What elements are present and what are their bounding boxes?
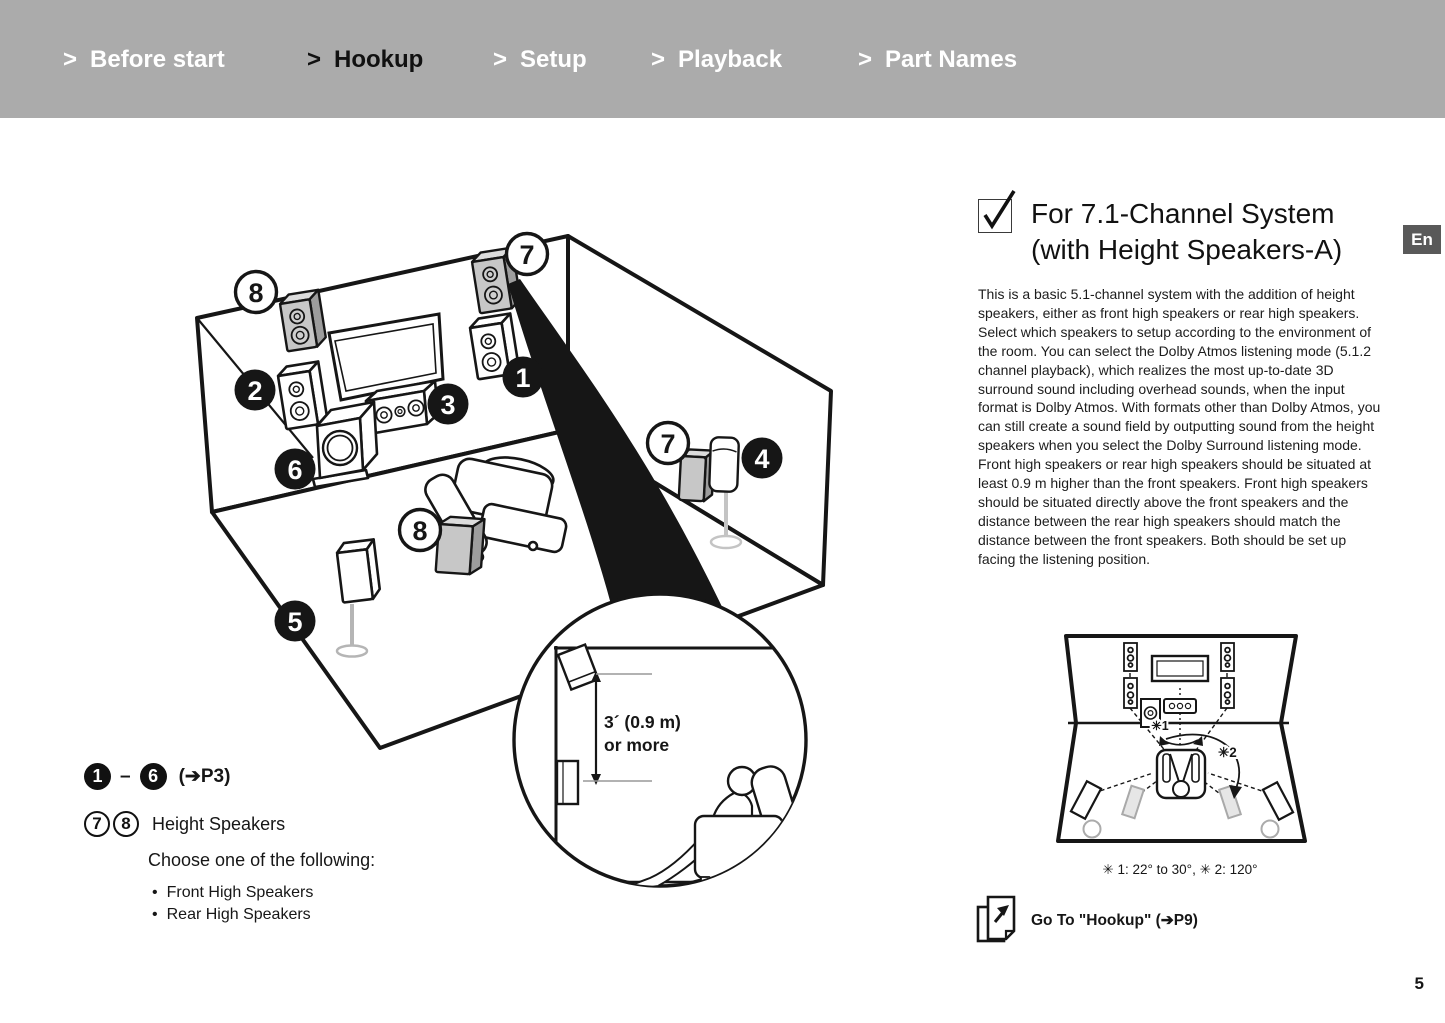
speaker-badge: 8 [400,510,441,551]
height-options-list: •Front High Speakers •Rear High Speakers [152,882,375,926]
speaker-badge: 6 [275,449,316,490]
height-detail-inset: 3´ (0.9 m) or more [514,594,806,888]
speaker-badge: 7 [507,234,548,275]
inset-dimension-text: or more [604,735,669,755]
checkbox [978,199,1012,233]
speaker-badge: 2 [235,370,276,411]
svg-text:4: 4 [754,444,769,474]
badge-6: 6 [140,763,167,790]
inset-dimension-text: 3´ (0.9 m) [604,712,681,732]
svg-text:7: 7 [660,429,675,459]
section-heading: For 7.1-Channel System (with Height Spea… [976,196,1396,268]
angle-label-2: ✳2 [1218,745,1237,760]
mini-diagram-caption: ✳ 1: 22° to 30°, ✳ 2: 120° [1102,862,1257,877]
page-reference-link[interactable]: (➔P3) [179,765,231,788]
check-icon [979,200,1011,232]
mini-topdown-diagram: ✳1 ✳2 ✳ 1: 22° to 30°, ✳ 2: 120° [1058,636,1305,877]
option-label: Front High Speakers [167,884,314,901]
goto-pages-icon [976,895,1022,945]
legend-height-row: 7 8 Height Speakers [84,811,375,837]
rear-high-left-speaker [436,516,485,575]
badge-8: 8 [113,811,139,837]
badge-1: 1 [84,763,111,790]
speaker-badge: 1 [503,357,544,398]
section-body-text: This is a basic 5.1-channel system with … [978,285,1384,569]
list-item: •Front High Speakers [152,882,375,904]
speaker-badge: 4 [742,438,783,479]
range-dash: – [120,766,131,788]
goto-label: Go To "Hookup" (➔P9) [1031,911,1198,930]
height-speakers-label: Height Speakers [152,814,285,835]
svg-text:3: 3 [440,390,455,420]
svg-text:6: 6 [287,455,302,485]
speaker-badge: 5 [275,601,316,642]
legend-range-row: 1 – 6 (➔P3) [84,763,375,790]
bullet-icon: • [152,884,158,901]
page-title-line2: (with Height Speakers-A) [1031,232,1396,268]
speaker-badge: 8 [236,272,277,313]
bullet-icon: • [152,906,158,923]
list-item: •Rear High Speakers [152,904,375,926]
svg-text:8: 8 [248,278,263,308]
page-number: 5 [1394,974,1424,994]
speaker-badge: 7 [648,423,689,464]
angle-label-1: ✳1 [1151,719,1168,733]
legend: 1 – 6 (➔P3) 7 8 Height Speakers Choose o… [84,763,375,926]
option-label: Rear High Speakers [167,906,311,923]
badge-7: 7 [84,811,110,837]
svg-text:2: 2 [247,376,262,406]
goto-hookup-link[interactable]: Go To "Hookup" (➔P9) [976,895,1198,945]
front-high-left-speaker [279,290,327,352]
front-left-speaker [277,362,328,430]
svg-text:1: 1 [515,363,530,393]
svg-text:8: 8 [412,516,427,546]
svg-text:5: 5 [287,607,302,637]
speaker-badge: 3 [428,384,469,425]
page-title-line1: For 7.1-Channel System [1031,196,1396,232]
svg-text:7: 7 [519,240,534,270]
choose-label: Choose one of the following: [148,850,375,871]
